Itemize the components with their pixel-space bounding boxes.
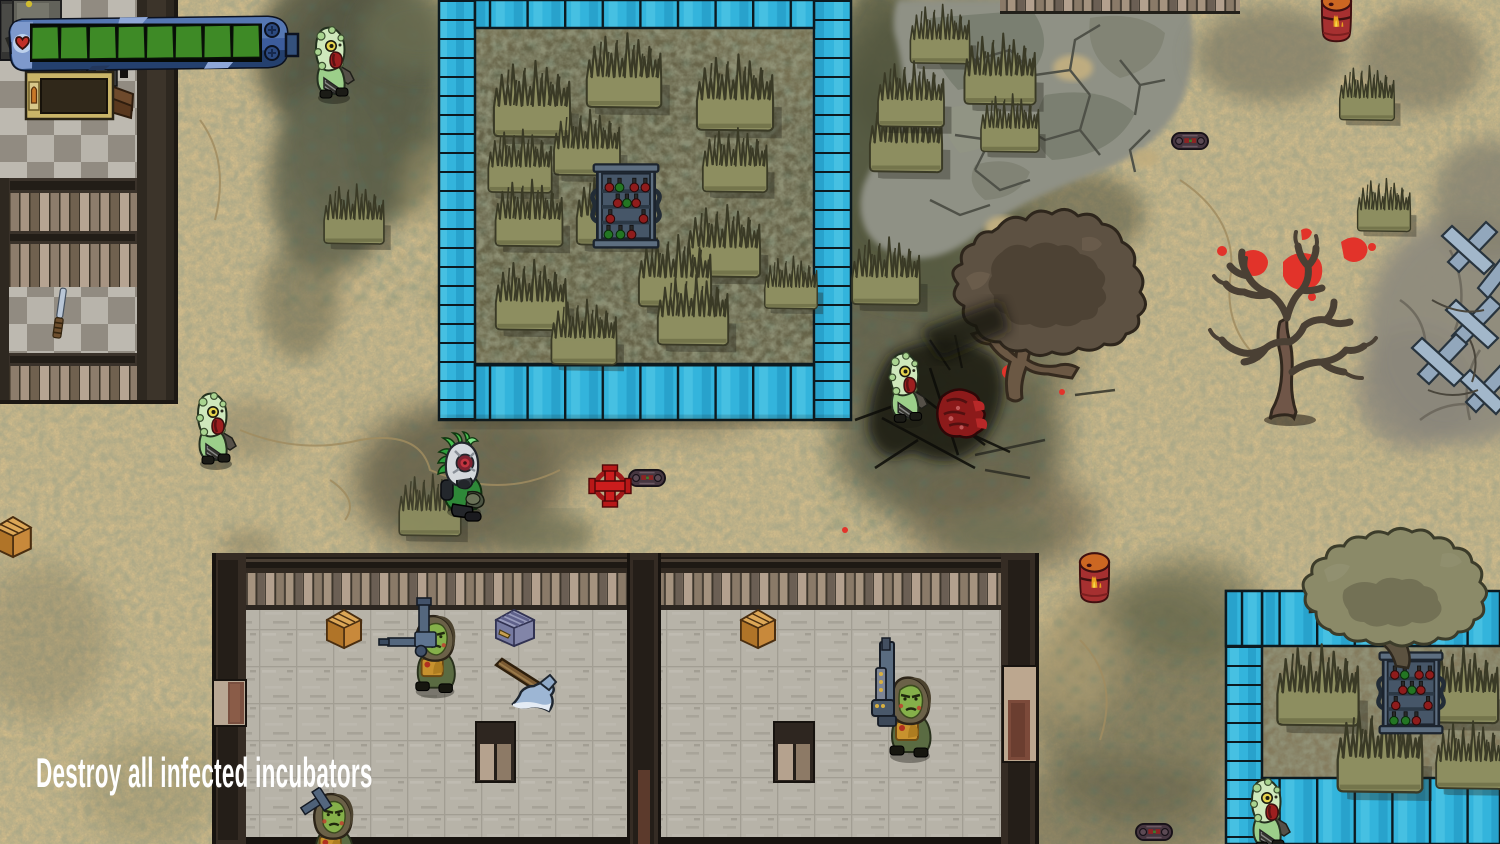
- svg-text:Destroy all infected incubator: Destroy all infected incubators: [36, 751, 373, 797]
